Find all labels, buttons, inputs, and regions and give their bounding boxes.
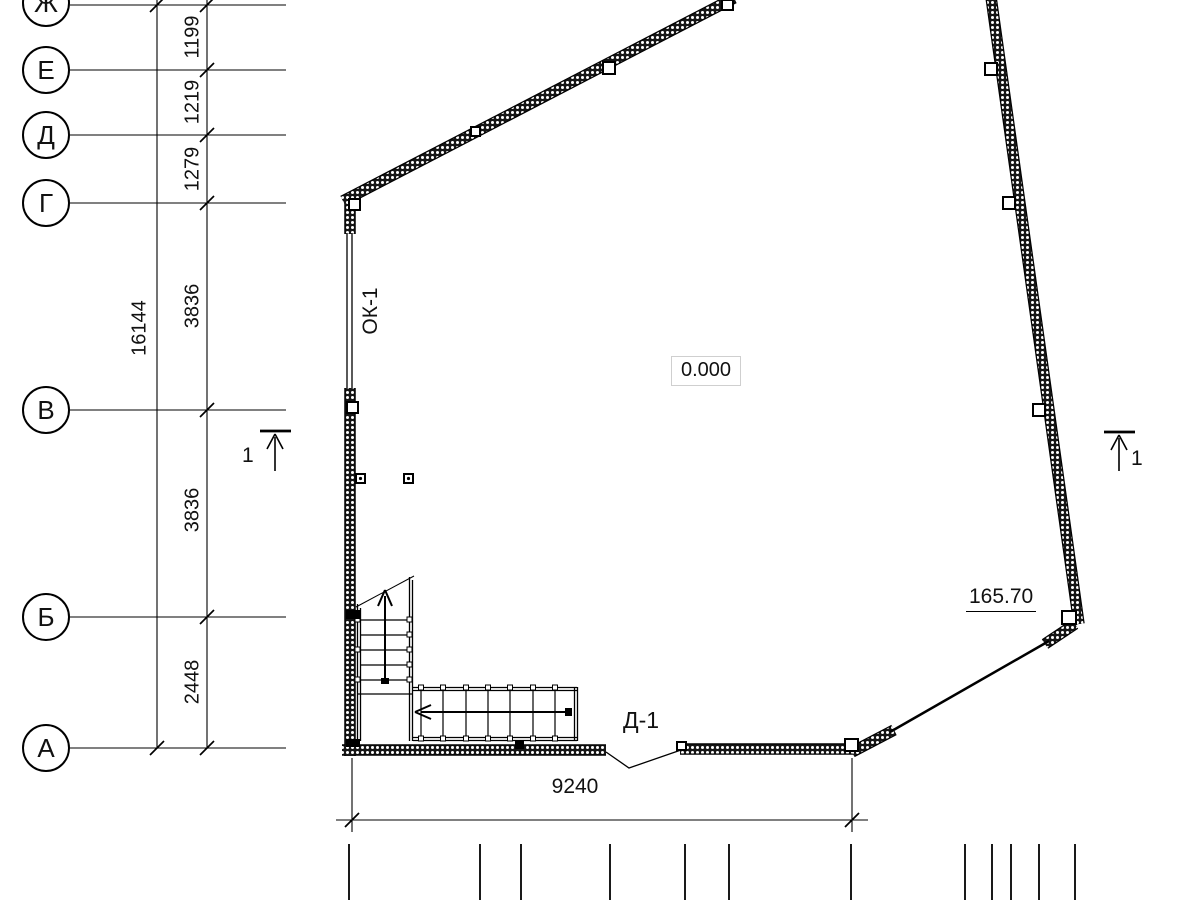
dim-segment-b-a: 2448 [182, 660, 205, 705]
axis-label: Б [37, 604, 54, 630]
axis-bubble-e: Е [22, 46, 70, 94]
window-lines [347, 233, 352, 389]
axis-label: Г [39, 190, 53, 216]
floor-plan-canvas: Ж Е Д Г В Б А 1199 1219 1279 3836 3836 2… [0, 0, 1200, 900]
stair-left-arrow [415, 705, 572, 719]
section-marks [260, 431, 1135, 471]
door-swing [606, 750, 681, 768]
axis-label: Е [37, 57, 54, 83]
axis-bubble-d: Д [22, 111, 70, 159]
level-mark-box: 0.000 [671, 356, 741, 386]
elevation-mark: 165.70 [966, 585, 1036, 612]
grid-axis-lines [70, 0, 286, 749]
door-mark-label: Д-1 [623, 707, 659, 734]
floor-plan-geometry [0, 0, 1200, 900]
axis-label: А [37, 735, 54, 761]
stair [355, 576, 578, 741]
stair-up-arrow [378, 590, 392, 684]
axis-label: В [37, 397, 54, 423]
dim-bottom-width: 9240 [500, 775, 650, 799]
dim-segment-e-d: 1219 [182, 80, 205, 125]
dim-segment-v-b: 3836 [182, 488, 205, 533]
level-mark-value: 0.000 [681, 359, 731, 381]
section-number-right: 1 [1131, 447, 1143, 471]
dim-segment-d-g: 1279 [182, 147, 205, 192]
axis-bubble-v: В [22, 386, 70, 434]
bottom-ruler-ticks [349, 844, 1075, 900]
axis-bubble-g: Г [22, 179, 70, 227]
window-band-line [890, 641, 1049, 732]
room-point-markers [356, 474, 413, 483]
dim-vertical-overall: 16144 [129, 300, 152, 356]
axis-label: Д [37, 122, 55, 148]
dim-segment-zh-e: 1199 [182, 15, 205, 58]
window-mark-label: ОК-1 [359, 287, 383, 334]
dim-segment-g-v: 3836 [182, 284, 205, 329]
axis-bubble-a: А [22, 724, 70, 772]
section-number-left: 1 [242, 444, 254, 468]
axis-bubble-b: Б [22, 593, 70, 641]
axis-label: Ж [34, 0, 58, 16]
